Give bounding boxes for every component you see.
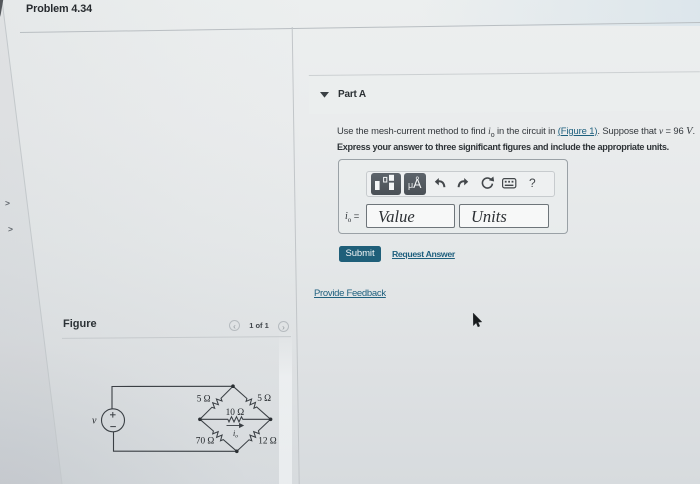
svg-text:5 Ω: 5 Ω xyxy=(257,394,271,404)
svg-text:io: io xyxy=(233,429,238,439)
svg-text:v: v xyxy=(92,415,97,426)
svg-text:10 Ω: 10 Ω xyxy=(226,408,245,418)
svg-text:5 Ω: 5 Ω xyxy=(197,395,211,405)
svg-text:70 Ω: 70 Ω xyxy=(196,437,215,447)
svg-text:12 Ω: 12 Ω xyxy=(258,437,277,447)
